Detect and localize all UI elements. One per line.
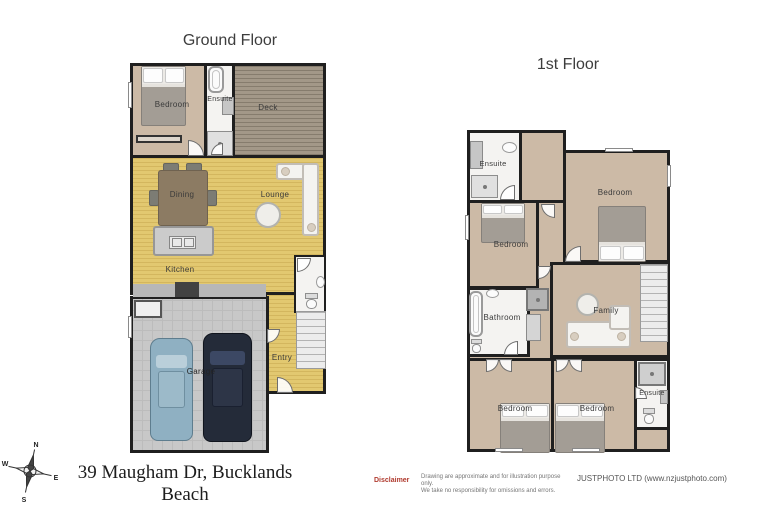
bed-fold bbox=[142, 84, 185, 87]
floorplan-image: Ground Floor bbox=[0, 0, 768, 512]
wardrobe-ground-bedroom bbox=[136, 135, 182, 143]
coffee-table bbox=[255, 202, 281, 228]
window bbox=[128, 82, 132, 108]
garage-utility bbox=[134, 300, 162, 318]
first-floor-title: 1st Floor bbox=[508, 56, 628, 74]
company-credit: JUSTPHOTO LTD (www.nzjustphoto.com) bbox=[577, 474, 727, 483]
label-bedroom-bottom-left: Bedroom bbox=[492, 404, 538, 414]
kitchen-sink-bowl bbox=[172, 238, 182, 247]
sofa-cushion bbox=[617, 332, 626, 341]
toilet-bathroom-first bbox=[471, 339, 482, 353]
staircase-ground bbox=[296, 311, 326, 369]
toilet-ensuite-bottom bbox=[643, 408, 655, 424]
compass-south: S bbox=[22, 497, 27, 504]
disclaimer-line2: We take no responsibility for omissions … bbox=[421, 488, 571, 495]
label-bathroom-first: Bathroom bbox=[478, 313, 526, 323]
disclaimer-line1: Drawing are approximate and for illustra… bbox=[421, 474, 571, 488]
label-ensuite-first-top: Ensuite bbox=[468, 159, 518, 169]
label-bedroom-bottom-mid: Bedroom bbox=[574, 404, 620, 414]
shower-first-ensuite bbox=[471, 175, 498, 198]
label-family: Family bbox=[588, 306, 624, 316]
label-deck: Deck bbox=[252, 103, 284, 113]
window bbox=[605, 148, 633, 152]
label-lounge: Lounge bbox=[256, 190, 294, 200]
window bbox=[495, 448, 523, 452]
label-bedroom-ground: Bedroom bbox=[146, 100, 198, 110]
cabinet-bathroom-first bbox=[526, 314, 541, 341]
room-hall-first bbox=[519, 130, 566, 203]
staircase-first bbox=[640, 264, 668, 342]
label-entry: Entry bbox=[266, 353, 298, 363]
bed-top-right bbox=[598, 206, 646, 262]
disclaimer-label: Disclaimer bbox=[374, 477, 409, 484]
window bbox=[572, 448, 600, 452]
garage-wall-strip bbox=[133, 284, 266, 297]
sofa-cushion bbox=[570, 332, 579, 341]
property-address: 39 Maugham Dr, Bucklands Beach bbox=[55, 462, 315, 506]
label-ensuite-ground: Ensuite bbox=[202, 95, 238, 105]
bathtub-ground-ensuite bbox=[208, 66, 224, 93]
label-garage: Garage bbox=[180, 367, 222, 377]
car-dark-navy bbox=[203, 333, 252, 442]
label-bedroom-top-right: Bedroom bbox=[592, 188, 638, 198]
kitchen-sink-bowl bbox=[184, 238, 194, 247]
basin-bathroom-first bbox=[486, 289, 499, 298]
window bbox=[465, 215, 469, 240]
label-bedroom-mid-left: Bedroom bbox=[488, 240, 534, 250]
compass-west: W bbox=[2, 461, 9, 468]
shower-ensuite-bottom bbox=[638, 362, 666, 386]
label-ensuite-bottom-right: Ensuite bbox=[633, 389, 671, 399]
sofa-cushion bbox=[307, 223, 316, 232]
bed-ground-bedroom bbox=[141, 66, 186, 126]
wc-toilet bbox=[305, 293, 318, 310]
compass-north: N bbox=[33, 442, 38, 449]
disclaimer-text: Drawing are approximate and for illustra… bbox=[421, 474, 571, 495]
label-kitchen: Kitchen bbox=[158, 265, 202, 275]
sofa-cushion bbox=[281, 167, 290, 176]
window bbox=[128, 316, 132, 338]
car-light-blue bbox=[150, 338, 193, 441]
bed-pillows bbox=[142, 67, 185, 84]
wc-basin bbox=[316, 276, 325, 288]
garage-pillar bbox=[175, 282, 199, 297]
window bbox=[667, 165, 671, 187]
ground-floor-title: Ground Floor bbox=[160, 32, 300, 50]
dining-chair bbox=[207, 190, 217, 206]
bed-mid-left bbox=[481, 203, 525, 243]
compass-rose: N E S W bbox=[0, 438, 60, 504]
shower-bathroom-first bbox=[526, 288, 549, 311]
label-dining: Dining bbox=[160, 190, 204, 200]
basin-first-ensuite bbox=[502, 142, 517, 153]
